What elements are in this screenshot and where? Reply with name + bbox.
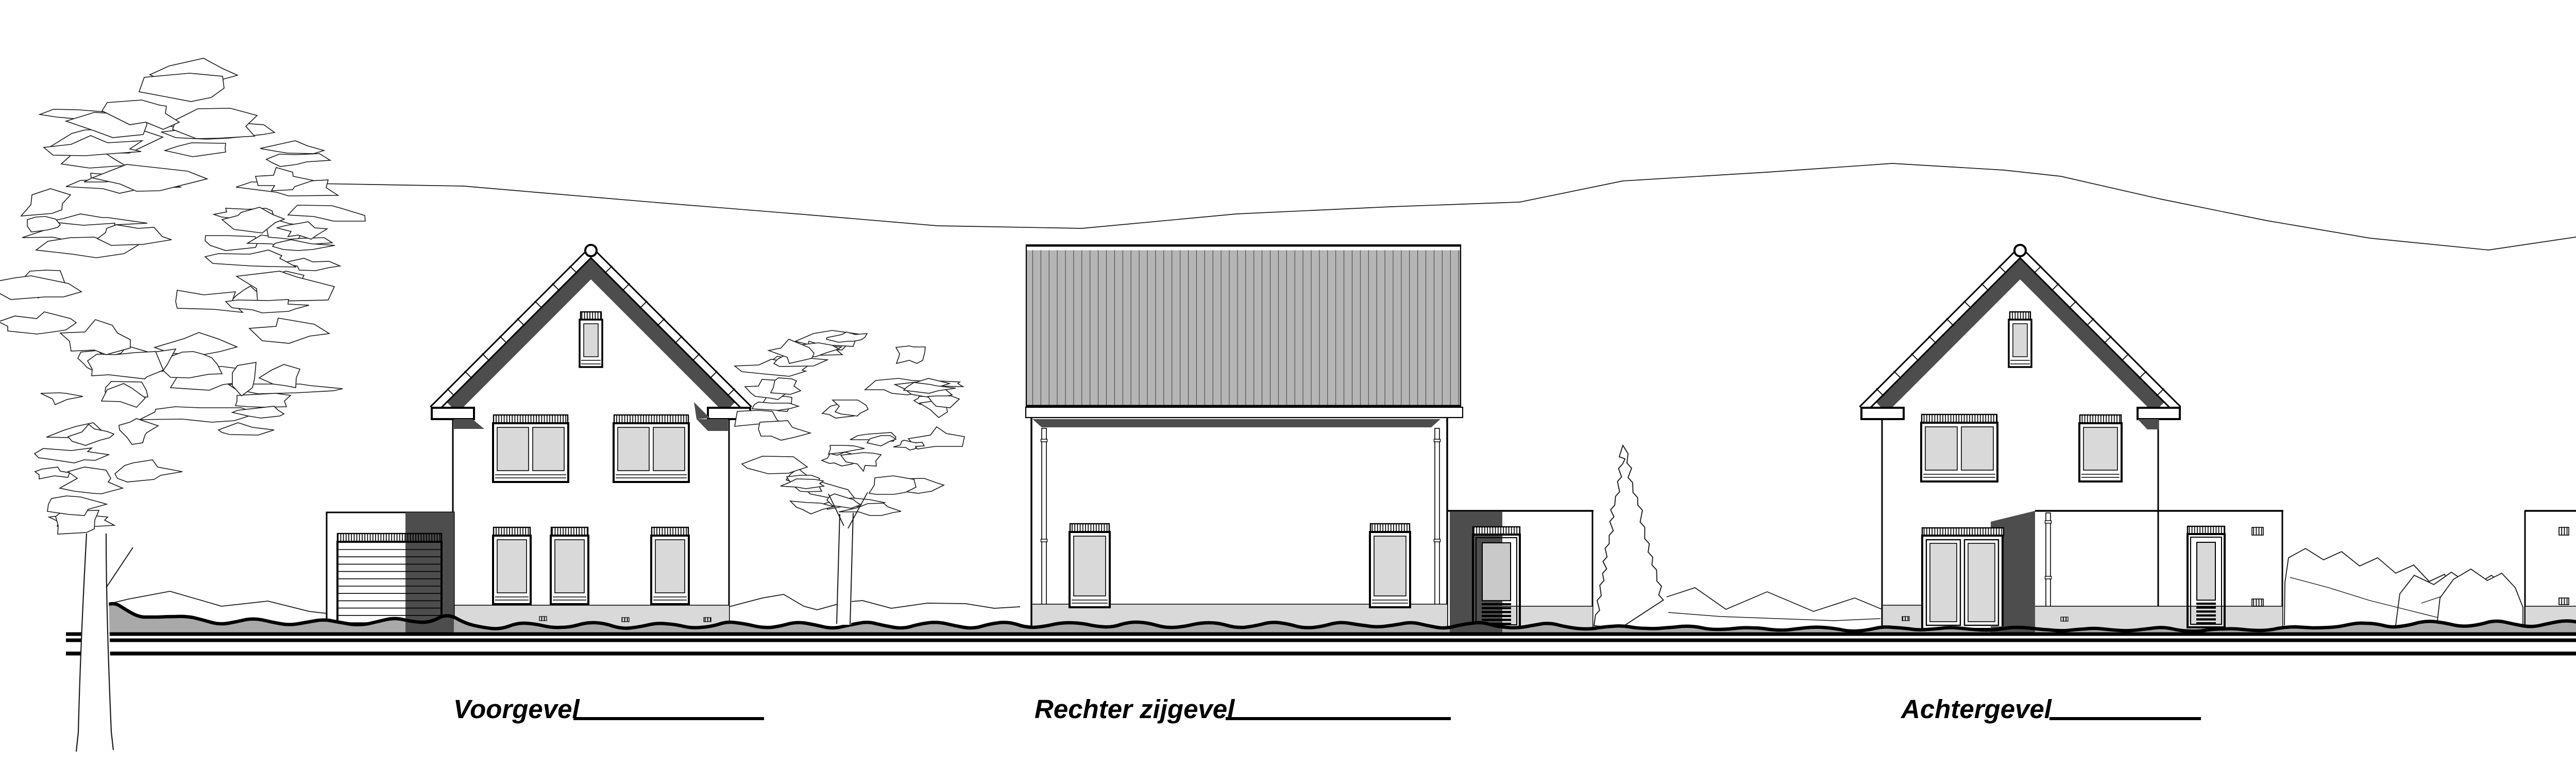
svg-text:Rechter zijgevel: Rechter zijgevel [1035, 694, 1235, 724]
svg-text:Achtergevel: Achtergevel [1900, 694, 2053, 724]
svg-text:Voorgevel: Voorgevel [453, 694, 581, 724]
